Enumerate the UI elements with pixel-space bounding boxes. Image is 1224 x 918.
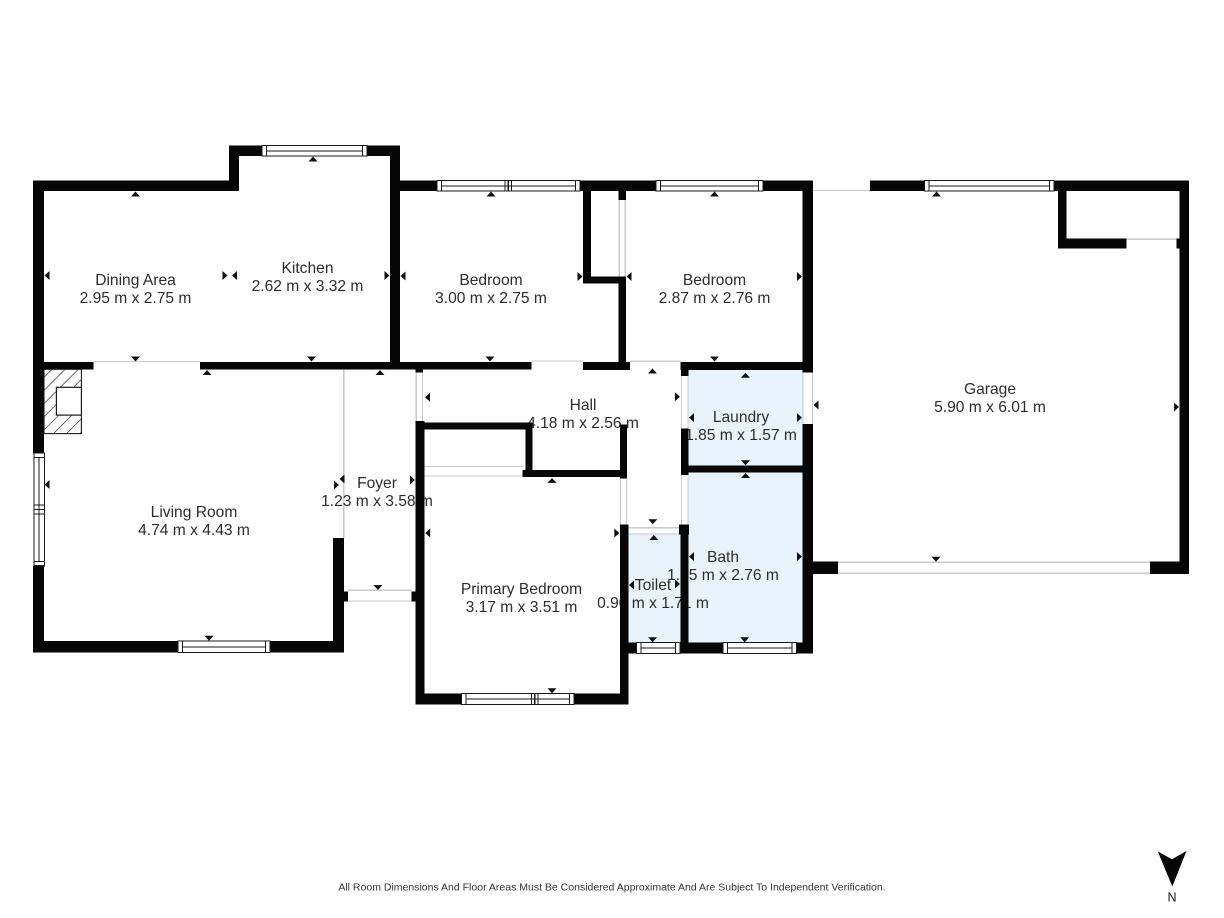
svg-text:0.90 m x 1.71 m: 0.90 m x 1.71 m bbox=[597, 595, 709, 612]
svg-text:1.85 m x 1.57 m: 1.85 m x 1.57 m bbox=[685, 427, 797, 444]
svg-text:3.17 m x 3.51 m: 3.17 m x 3.51 m bbox=[466, 599, 578, 616]
svg-text:2.87 m x 2.76 m: 2.87 m x 2.76 m bbox=[659, 290, 771, 307]
svg-text:All Room Dimensions And Floor: All Room Dimensions And Floor Areas Must… bbox=[338, 882, 885, 894]
svg-text:Dining Area: Dining Area bbox=[95, 272, 176, 289]
svg-text:Laundry: Laundry bbox=[713, 409, 770, 426]
svg-text:Garage: Garage bbox=[964, 381, 1016, 398]
svg-text:2.62 m x 3.32 m: 2.62 m x 3.32 m bbox=[252, 278, 364, 295]
svg-text:Kitchen: Kitchen bbox=[281, 260, 333, 277]
svg-text:Living Room: Living Room bbox=[151, 504, 238, 521]
svg-text:Foyer: Foyer bbox=[357, 475, 397, 492]
svg-text:Bath: Bath bbox=[707, 549, 739, 566]
svg-text:Primary Bedroom: Primary Bedroom bbox=[461, 581, 582, 598]
svg-text:2.95 m x 2.75 m: 2.95 m x 2.75 m bbox=[80, 290, 192, 307]
svg-text:3.00 m x 2.75 m: 3.00 m x 2.75 m bbox=[435, 290, 547, 307]
svg-text:4.74 m x 4.43 m: 4.74 m x 4.43 m bbox=[138, 522, 250, 539]
svg-text:N: N bbox=[1167, 891, 1176, 905]
svg-text:Bedroom: Bedroom bbox=[459, 272, 522, 289]
svg-text:Toilet: Toilet bbox=[635, 577, 672, 594]
svg-text:Hall: Hall bbox=[570, 397, 597, 414]
svg-text:Bedroom: Bedroom bbox=[683, 272, 746, 289]
svg-text:5.90 m x 6.01 m: 5.90 m x 6.01 m bbox=[934, 399, 1046, 416]
